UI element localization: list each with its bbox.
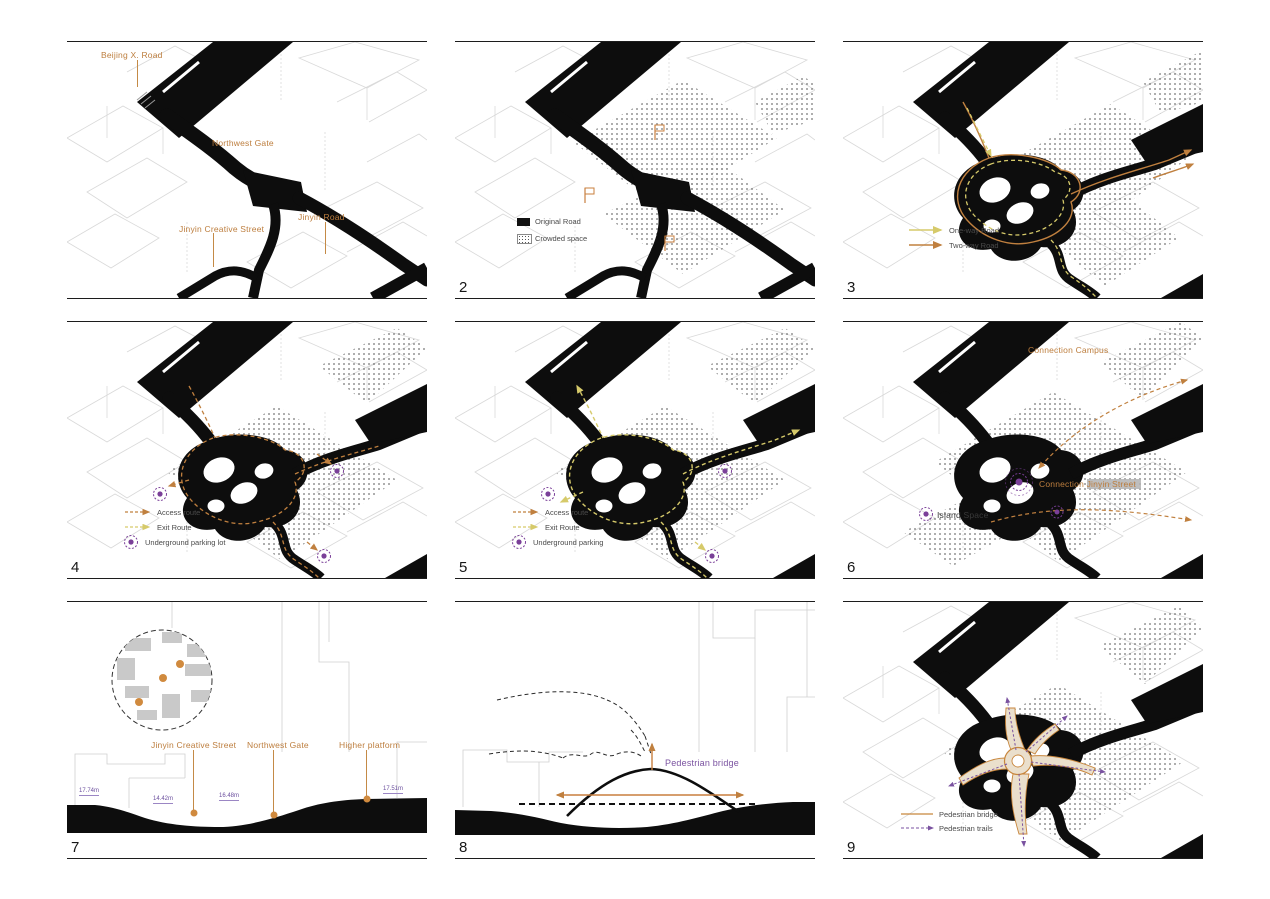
bridge-arch (567, 769, 739, 816)
panel-number: 3 (847, 279, 855, 296)
panel-8-bridge-concept: Pedestrian bridge 8 (455, 601, 815, 859)
location-inset (112, 630, 213, 730)
leader-line (137, 60, 138, 87)
legend-exit-route: Exit Route (157, 523, 192, 532)
legend-two-way: Two-way Road (949, 241, 999, 250)
legend-access-route: Access route (157, 508, 200, 517)
label-northwest-gate: Northwest Gate (212, 138, 274, 148)
label-beijing-road: Beijing X. Road (101, 50, 163, 60)
label-connection-campus: Connection Campus (1028, 345, 1108, 355)
panel-number: 7 (71, 839, 79, 856)
legend-one-way: One-way Road (949, 226, 999, 235)
label-higher-platform: Higher platform (339, 740, 400, 750)
legend-island-icon (920, 508, 933, 521)
panel-6-art (843, 322, 1203, 578)
panel-number: 8 (459, 839, 467, 856)
panel-number: 6 (847, 559, 855, 576)
section-building-lines (463, 602, 815, 807)
legend-pedestrian-trails: Pedestrian trails (939, 824, 993, 833)
panel-3-art (843, 42, 1203, 298)
elevation-value: 14.42m (153, 796, 173, 804)
underground-parking-marker (154, 488, 167, 501)
label-jinyin-creative-street: Jinyin Creative Street (151, 740, 236, 750)
legend-original-road: Original Road (535, 217, 581, 226)
panel-9-art (843, 602, 1203, 858)
panel-1-art (67, 42, 427, 298)
diagram-sheet: Beijing X. Road Northwest Gate Jinyin Ro… (0, 0, 1270, 899)
ground-section (455, 802, 815, 835)
panel-7-section: Jinyin Creative Street Northwest Gate Hi… (67, 601, 427, 859)
legend-underground-parking: Underground parking (533, 538, 603, 547)
panel-8-art (455, 602, 815, 858)
leader-line (193, 750, 194, 810)
legend-exit-route: Exit Route (545, 523, 580, 532)
legend-underground-parking: Underground parking lot (145, 538, 225, 547)
leader-line (325, 222, 326, 254)
elevation-value: 17.74m (79, 788, 99, 796)
elevation-value: 16.48m (219, 793, 239, 801)
flag-icon (585, 188, 594, 203)
panel-1-existing-roads: Beijing X. Road Northwest Gate Jinyin Ro… (67, 41, 427, 299)
panel-number: 5 (459, 559, 467, 576)
leader-line (213, 233, 214, 267)
legend-swatch-original-road (517, 218, 530, 226)
elevation-value: 17.51m (383, 786, 403, 794)
crowded-space-pattern (573, 76, 815, 274)
panel-number: 2 (459, 279, 467, 296)
panel-5-access-exit-yellow: Access route Exit Route Underground park… (455, 321, 815, 579)
panel-2-art (455, 42, 815, 298)
panel-6-connections: Connection Campus Connection Jinyin Stre… (843, 321, 1203, 579)
underground-parking-marker (542, 488, 555, 501)
panel-5-art (455, 322, 815, 578)
label-island-space: Island Space (937, 510, 989, 520)
legend-access-route: Access route (545, 508, 588, 517)
panel-number: 4 (71, 559, 79, 576)
panel-4-access-exit: Access route Exit Route Underground park… (67, 321, 427, 579)
label-pedestrian-bridge: Pedestrian bridge (665, 758, 739, 768)
leader-line (366, 750, 367, 796)
panel-7-art (67, 602, 427, 858)
panel-2-crowded-space: Original Road Crowded space 2 (455, 41, 815, 299)
legend-crowded-space: Crowded space (535, 234, 587, 243)
legend-pedestrian-bridge: Pedestrian bridge (939, 810, 998, 819)
leader-line (273, 750, 274, 812)
panel-9-bridge-plan: Pedestrian bridge Pedestrian trails 9 (843, 601, 1203, 859)
label-jinyin-creative-street: Jinyin Creative Street (179, 224, 264, 234)
label-northwest-gate: Northwest Gate (247, 740, 309, 750)
legend-swatch-crowded-space (517, 234, 532, 244)
label-jinyin-road: Jinyin Road (298, 212, 345, 222)
ground-section (67, 798, 427, 833)
label-connection-jinyin: Connection Jinyin Street (1039, 479, 1136, 489)
hand-sketch (489, 692, 651, 758)
panel-3-road-directions: One-way Road Two-way Road 3 (843, 41, 1203, 299)
panel-4-art (67, 322, 427, 578)
panel-number: 9 (847, 839, 855, 856)
